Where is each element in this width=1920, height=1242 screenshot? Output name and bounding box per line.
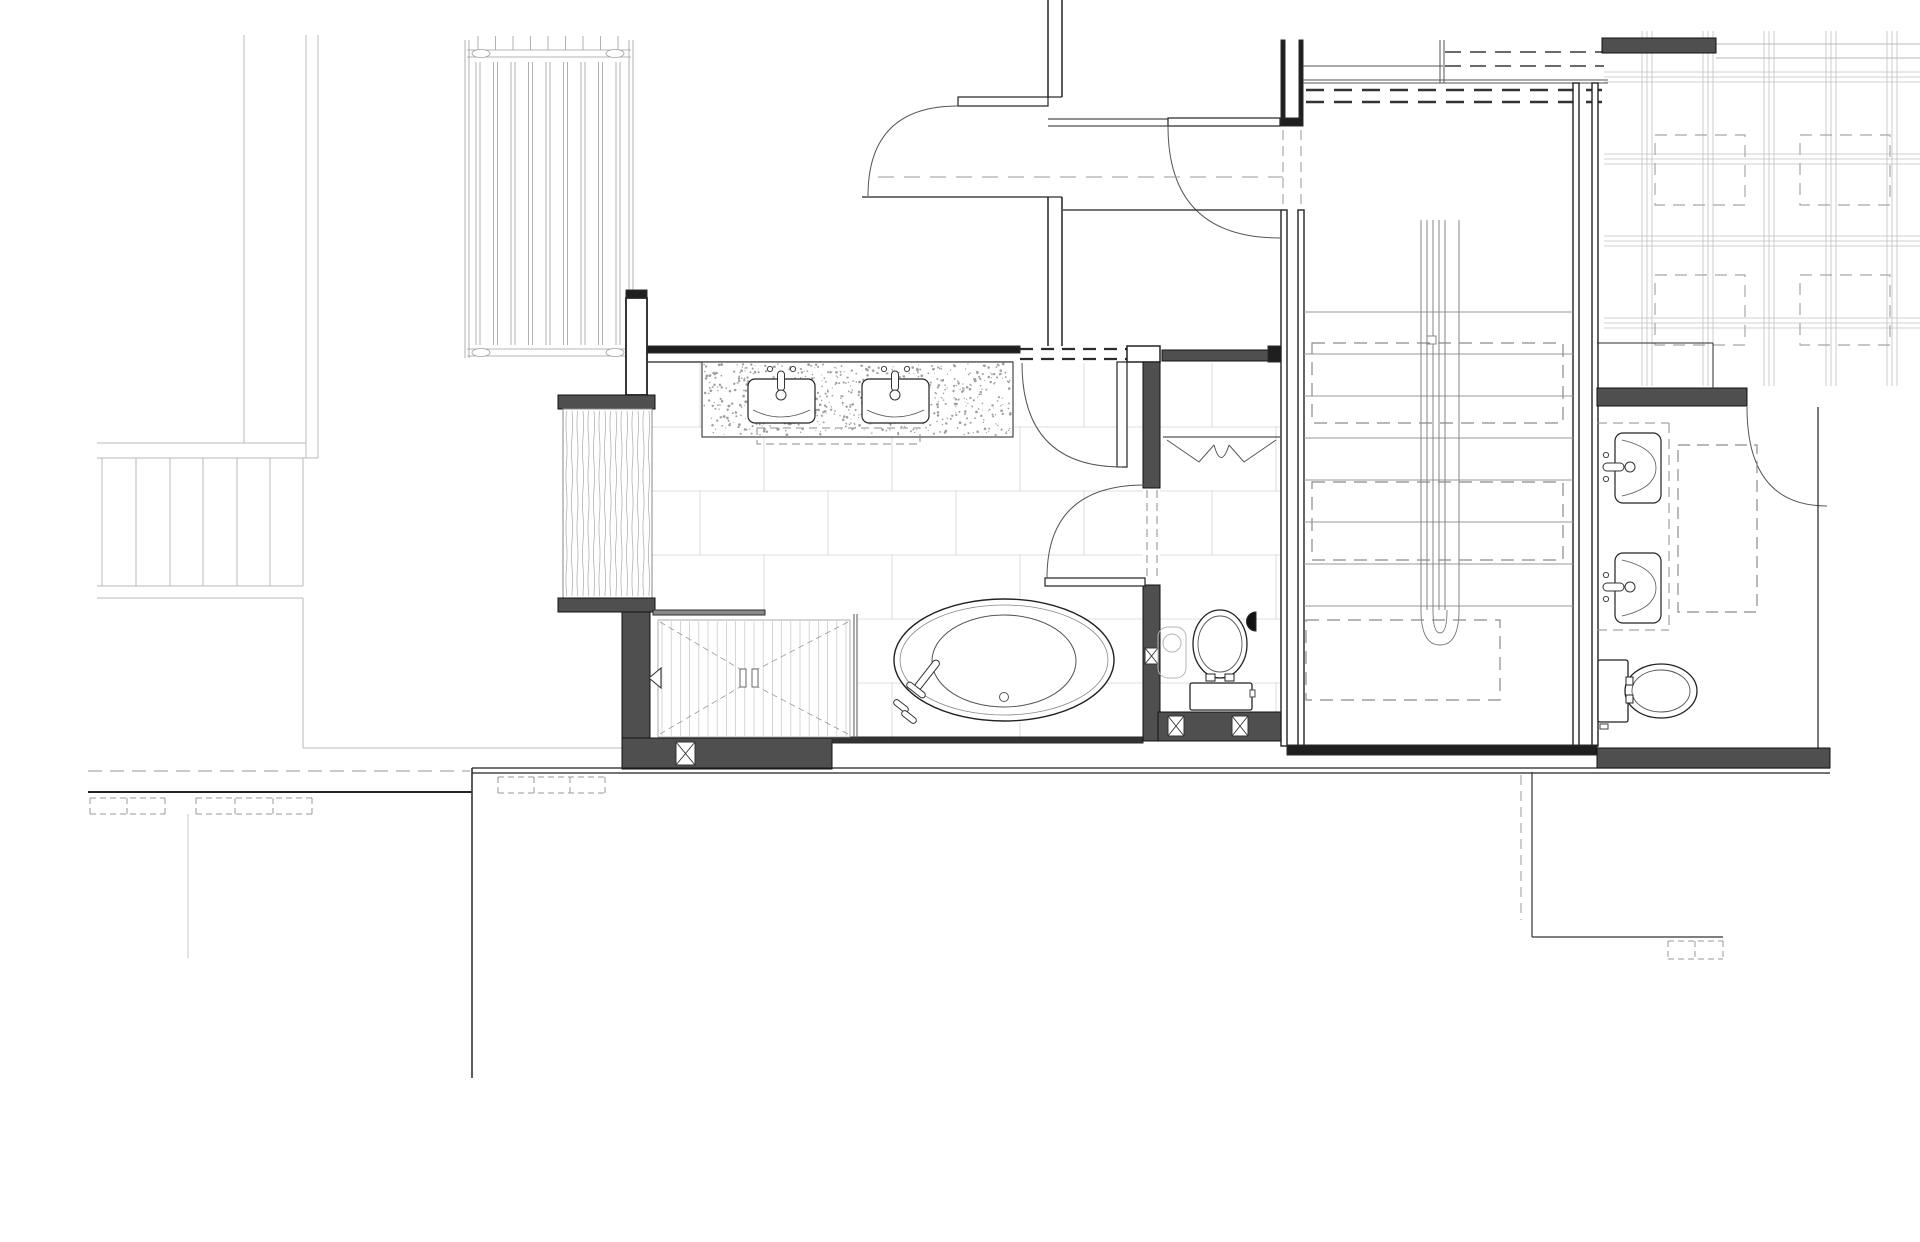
ghost-dashed-panel <box>1800 275 1890 345</box>
bathtub-drain <box>1000 693 1009 702</box>
faucet-handle <box>904 366 909 371</box>
wood-wall-cap <box>558 395 655 409</box>
toilet-seat-hinge <box>1626 695 1633 703</box>
tub-filler-handle <box>900 709 917 724</box>
faucet-handle <box>1603 596 1608 601</box>
north-wall-poche <box>1602 38 1716 53</box>
wc-door-leaf <box>1045 578 1145 586</box>
stair-rail-return <box>1433 610 1447 633</box>
hall-door-swing <box>868 106 958 196</box>
faucet-aerator <box>1625 462 1635 472</box>
faucet-handle <box>1603 572 1608 577</box>
stair-bottom-wall <box>1287 745 1597 755</box>
shower-drain <box>752 669 758 687</box>
beam-header-symbol <box>498 777 605 793</box>
faucet-spout <box>1603 583 1624 591</box>
beam-header-symbol <box>90 798 165 814</box>
closet-hanger-symbol <box>1229 440 1276 462</box>
toilet-seat-hinge <box>1626 677 1633 685</box>
bath2-south-wall-poche <box>1597 748 1830 768</box>
bath2-toilet-flush <box>1600 724 1608 729</box>
shower-halfwall <box>653 610 765 615</box>
bath2-dashed-outline <box>1678 445 1757 612</box>
faucet-aerator <box>1625 582 1635 592</box>
beam-header-symbol <box>1668 941 1723 959</box>
shower-drain <box>740 669 746 687</box>
wood-screen-wall <box>563 409 652 598</box>
guardrail-dashed <box>1306 620 1500 700</box>
toilet-flush <box>1250 690 1255 697</box>
ghost-dashed-panel <box>1655 275 1745 345</box>
faucet-handle <box>1603 452 1608 457</box>
stair-west-wall <box>1281 210 1287 746</box>
toilet-seat-hinge <box>1206 674 1215 681</box>
entry-marker-triangle <box>649 668 661 688</box>
closet-hanger-symbol <box>1167 440 1214 462</box>
stud-blocking <box>1232 716 1248 736</box>
ghost-dashed-panel <box>1800 135 1890 205</box>
stair-wall-cap <box>1281 118 1303 126</box>
closet-back-wall <box>1162 350 1268 361</box>
stair-rail-return <box>1421 610 1459 645</box>
south-wall-poche <box>622 738 832 769</box>
trellis-rail-end <box>606 50 624 58</box>
faucet-handle <box>790 366 795 371</box>
guardrail-dashed <box>1312 482 1563 560</box>
bathtub-outer <box>894 599 1114 721</box>
faucet-aerator <box>776 390 786 400</box>
bath2-toilet-tank <box>1598 660 1628 722</box>
ghost-dashed-panel <box>1655 135 1745 205</box>
faucet-aerator <box>890 390 900 400</box>
ghost-fixture-circle <box>1163 634 1181 652</box>
trellis-rail-end <box>472 349 490 357</box>
wood-wall-cap <box>558 598 655 612</box>
floor-plan-svg <box>0 0 1920 1242</box>
faucet-handle <box>881 366 886 371</box>
guardrail-dashed <box>1312 343 1563 423</box>
toilet-seat-hinge <box>1225 674 1234 681</box>
stair-east-wall <box>1592 83 1598 746</box>
trellis-rail-end <box>606 349 624 357</box>
faucet-handle <box>767 366 772 371</box>
faucet-spout <box>892 371 899 391</box>
faucet-handle <box>1603 476 1608 481</box>
trellis-rail-end <box>472 50 490 58</box>
west-wall-poche <box>622 612 650 740</box>
stair-east-wall <box>1573 83 1579 746</box>
stair-wall-top <box>1281 40 1285 126</box>
toilet-bowl <box>1193 610 1247 678</box>
wc-door-swing <box>1047 485 1145 578</box>
hall-door-leaf <box>958 97 1048 106</box>
tub-wall-band <box>832 737 1143 743</box>
entry-door-leaf <box>1117 362 1127 467</box>
faucet-spout <box>778 371 785 391</box>
bath2-door-swing <box>1747 407 1827 506</box>
upper-door-leaf <box>1168 118 1280 126</box>
stud-blocking <box>1145 648 1158 664</box>
post-blocking <box>676 742 695 765</box>
stud-blocking <box>1168 716 1184 736</box>
bath-top-wall <box>645 346 1020 353</box>
faucet-spout <box>1603 463 1624 471</box>
floor-plan <box>0 0 1920 1242</box>
door-jamb-wall <box>1127 346 1160 362</box>
wc-wall-poche <box>1143 362 1160 488</box>
stair-wall-top <box>1299 40 1303 126</box>
hall-wall-cap <box>626 290 647 298</box>
entry-door-swing <box>1022 363 1122 467</box>
closet-hanger-center <box>1214 445 1229 458</box>
beam-header-symbol <box>196 798 312 814</box>
bath2-toilet-bowl <box>1625 664 1697 718</box>
stair-west-wall <box>1298 210 1304 746</box>
bath2-top-wall-poche <box>1597 388 1747 406</box>
hall-wall-white <box>626 298 647 395</box>
door-stop-marker <box>1247 612 1257 631</box>
upper-door-swing <box>1168 126 1280 238</box>
toilet-tank <box>1190 683 1252 710</box>
